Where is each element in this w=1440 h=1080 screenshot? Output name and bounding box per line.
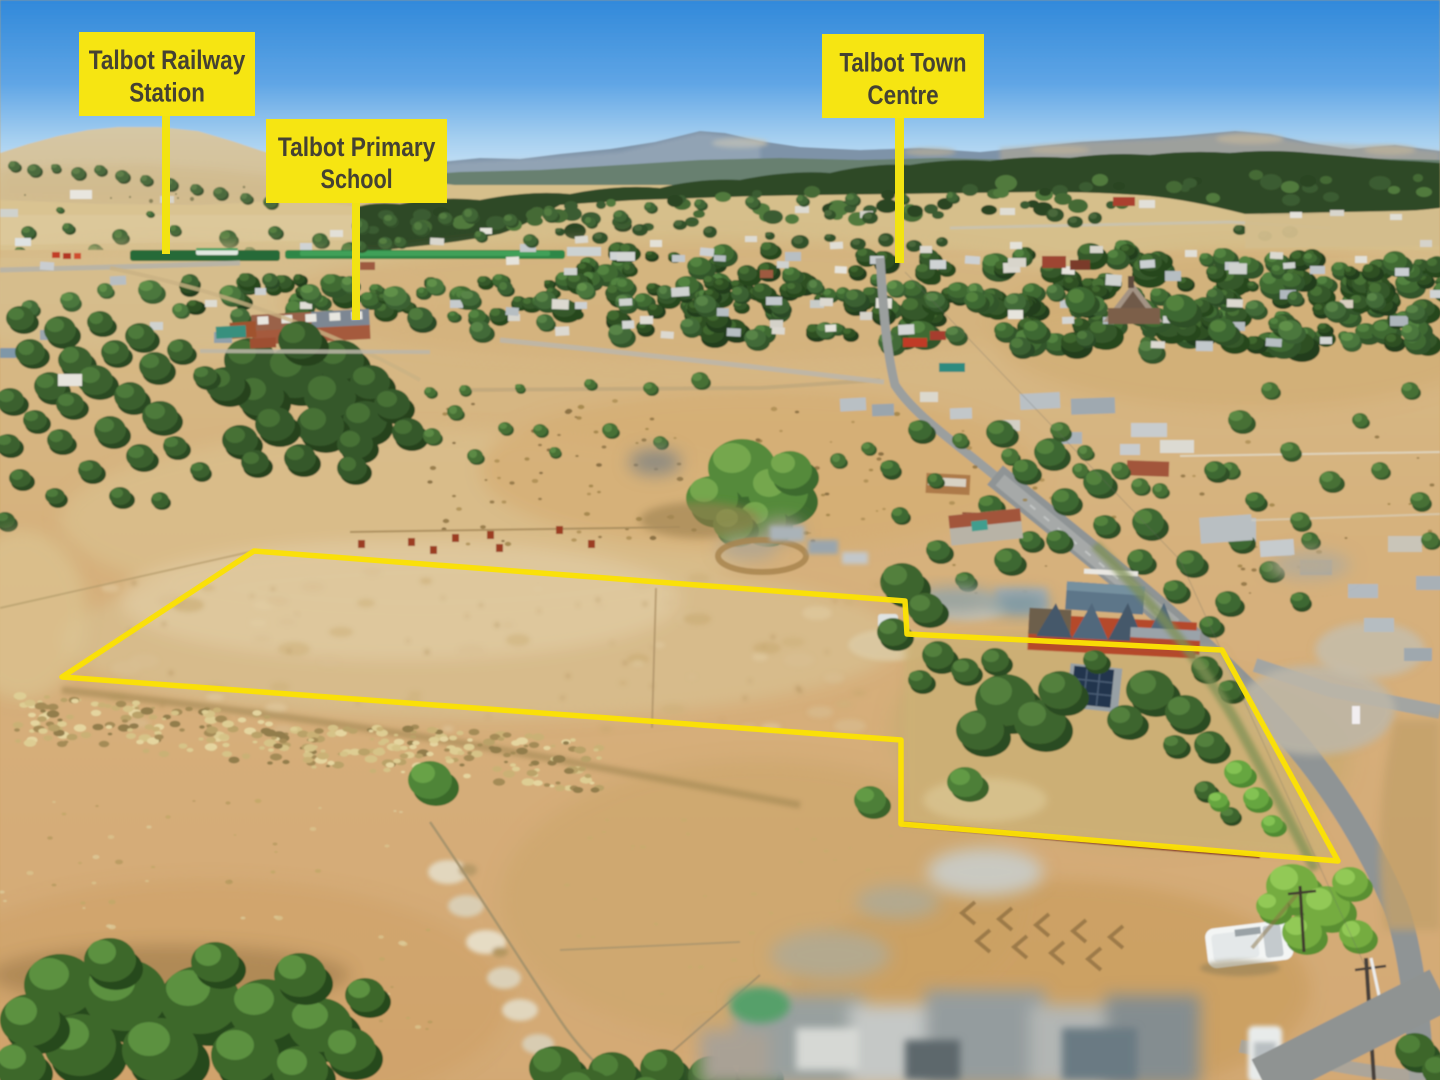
svg-text:Centre: Centre	[867, 80, 938, 110]
svg-text:School: School	[321, 164, 393, 194]
svg-text:Talbot Railway: Talbot Railway	[89, 45, 246, 75]
svg-text:Talbot Town: Talbot Town	[840, 47, 967, 77]
svg-text:Station: Station	[129, 77, 205, 107]
svg-text:Talbot Primary: Talbot Primary	[278, 132, 436, 162]
